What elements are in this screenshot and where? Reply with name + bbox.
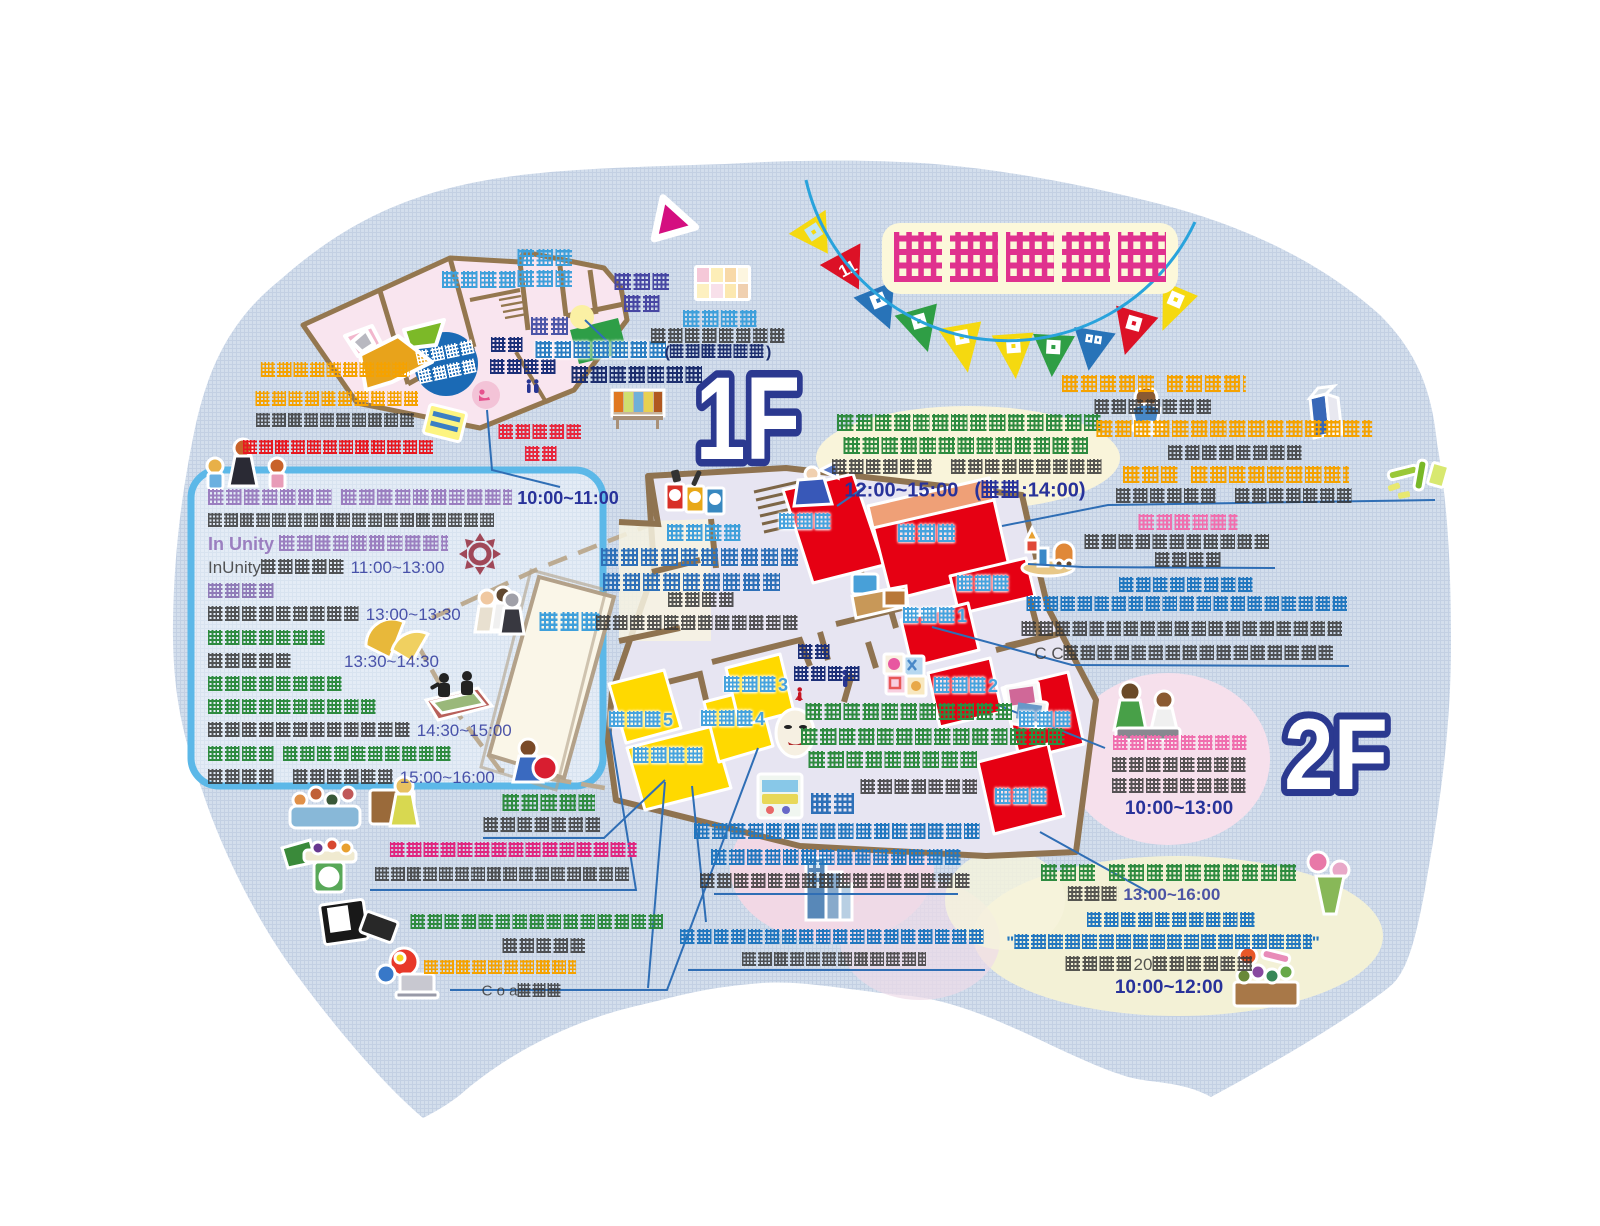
svg-text:1F: 1F xyxy=(696,353,801,485)
svg-text:2F: 2F xyxy=(1284,699,1388,812)
